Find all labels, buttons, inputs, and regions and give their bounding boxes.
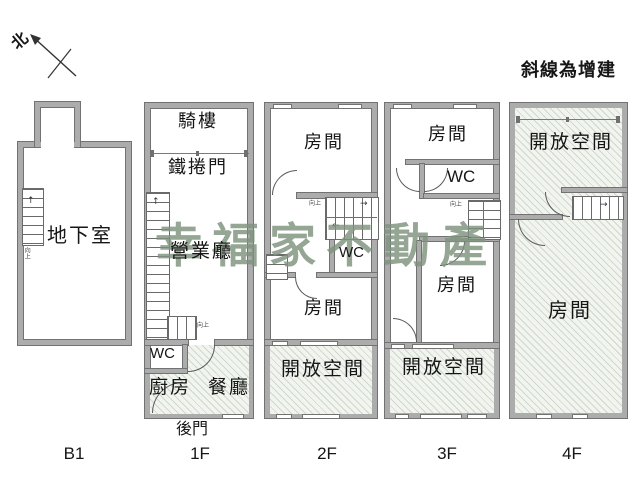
window (395, 414, 409, 419)
floor-label-2f: 2F (317, 445, 337, 463)
window (393, 104, 412, 109)
room-label-2f-front: 房間 (304, 133, 344, 152)
window (453, 104, 477, 109)
room-label-roller-door: 鐵捲門 (168, 158, 228, 177)
north-label: 北 (10, 29, 32, 53)
floor-label-1f: 1F (190, 445, 210, 463)
room-label-business-hall: 營業廳 (170, 242, 233, 262)
wall (562, 188, 627, 192)
room-label-dining: 餐廳 (208, 378, 250, 398)
stair-direction-note: 向上 (309, 201, 321, 207)
room-label-arcade: 騎樓 (178, 112, 218, 131)
north-arrow-icon: 北 (10, 24, 88, 84)
window (420, 414, 462, 419)
wall-opening (41, 140, 74, 152)
window (222, 414, 244, 419)
stairs-4f (572, 196, 624, 220)
stairs-1f-lower (167, 316, 197, 340)
back-door-label: 後門 (176, 422, 208, 439)
railing-end (616, 116, 620, 123)
roller-door-line (152, 153, 249, 154)
railing-end (516, 116, 520, 123)
window (276, 414, 292, 419)
roller-door-end (150, 150, 154, 157)
wall (215, 340, 253, 345)
room-label-2f-open-space: 開放空間 (281, 360, 365, 380)
window (272, 341, 288, 346)
window (412, 344, 454, 349)
window (300, 341, 338, 346)
railing-mid (566, 117, 569, 122)
room-label-wc-2f: WC (339, 245, 364, 261)
stair-direction-note: 向上 (450, 202, 462, 208)
window (467, 414, 487, 419)
stair-direction-note: 向上 (197, 323, 209, 329)
room-label-4f-room: 房間 (548, 301, 592, 322)
stair-up-arrow-icon: ↑ (27, 197, 35, 206)
wall (145, 369, 187, 373)
room-label-kitchen: 廚房 (149, 378, 191, 398)
room-label-wc-1f: WC (150, 346, 175, 362)
floor-plan-sheet: 北 斜線為增建 ↑ 向上 地下室 騎樓 鐵捲門 ↑ 向上 營業廳 WC 廚房 餐… (0, 0, 640, 480)
room-label-2f-middle: 房間 (304, 299, 344, 318)
floor-label-4f: 4F (562, 445, 582, 463)
window (391, 344, 405, 349)
roller-door-end (244, 150, 248, 157)
room-label-4f-open-space: 開放空間 (529, 133, 613, 153)
window (338, 104, 362, 109)
legend-note: 斜線為增建 (521, 56, 616, 82)
roller-door-mid (196, 151, 199, 156)
room-label-3f-front: 房間 (428, 125, 468, 144)
window (536, 414, 552, 419)
room-label-3f-middle: 房間 (437, 276, 477, 295)
floor-label-b1: B1 (64, 445, 85, 463)
room-label-basement: 地下室 (47, 226, 113, 247)
stair-arrow-icon: → (600, 201, 608, 210)
wall (424, 194, 499, 198)
room-label-wc-3f: WC (447, 168, 475, 186)
stair-direction-note: 向上 (23, 247, 29, 259)
stair-up-arrow-icon: ↑ (152, 198, 160, 207)
window (302, 414, 340, 419)
window (273, 104, 292, 109)
hatch-area-addition (515, 108, 622, 413)
window (572, 414, 588, 419)
room-label-3f-open-space: 開放空間 (402, 358, 486, 378)
floor-label-3f: 3F (437, 445, 457, 463)
